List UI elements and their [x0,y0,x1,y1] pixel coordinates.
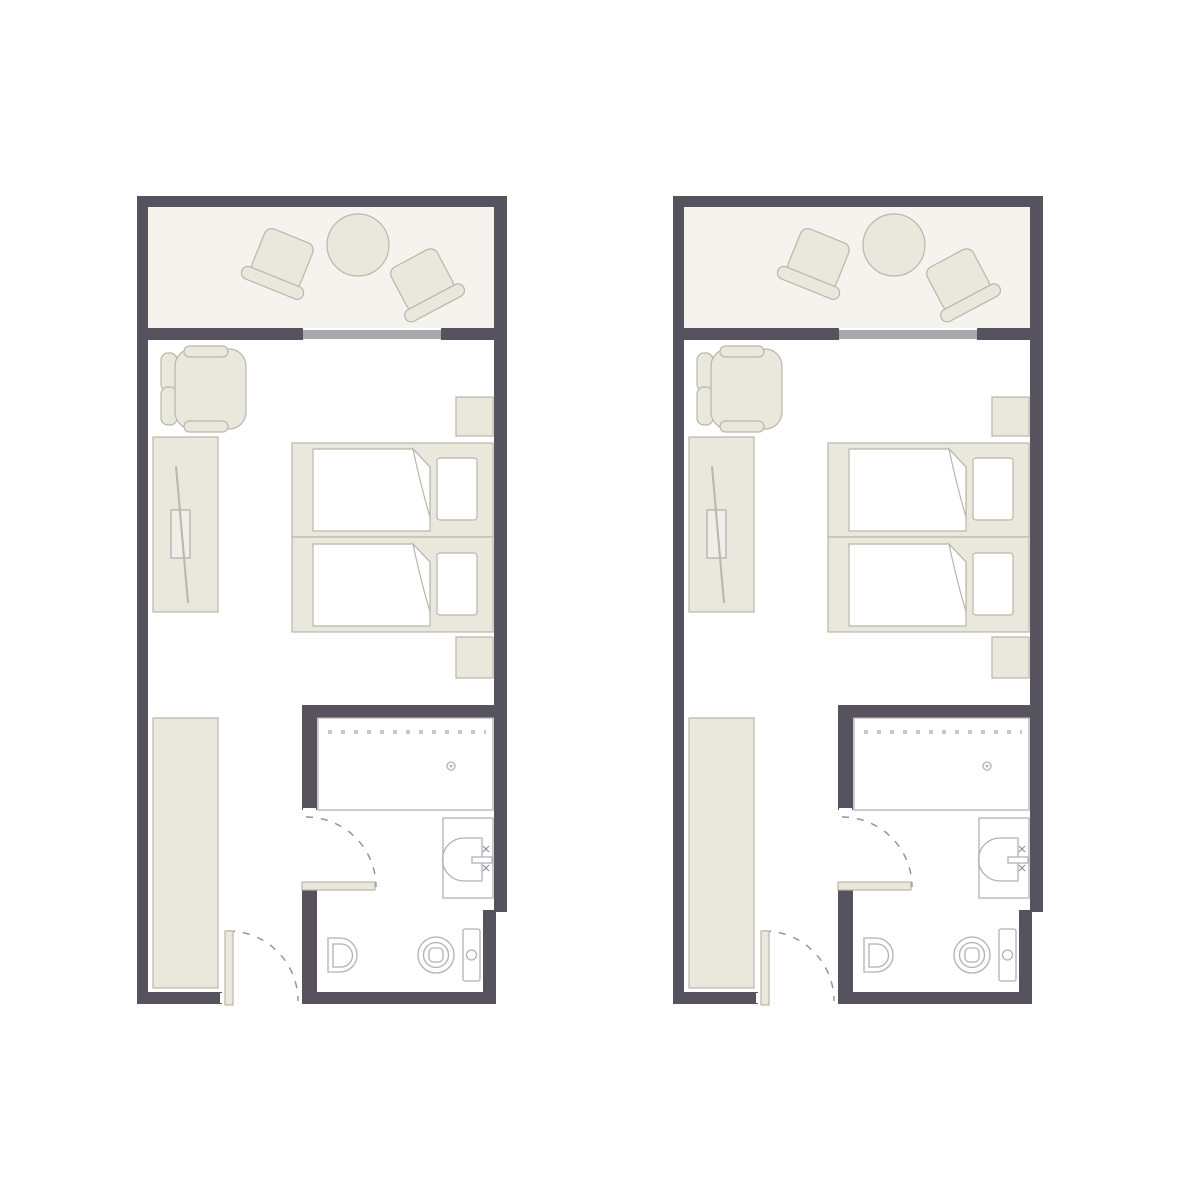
sink-vanity [979,818,1030,898]
floor-plan-svg [0,0,1200,1200]
pillow [973,553,1013,615]
wall-bathroom-top [838,705,1030,718]
wall-right-lower [483,910,496,1004]
bathroom-door-leaf [838,882,911,890]
desk-console [153,437,218,612]
bathroom-door-swing-arc [306,817,376,887]
wall-balcony-bottom-left [148,328,303,340]
desk-console [689,437,754,612]
twin-bed-2 [292,537,493,632]
floor-plan-canvas [0,0,1200,1200]
armchair-armrest-top [720,346,764,357]
entry-door-leaf [225,931,233,1005]
armchair [161,346,246,432]
toilet [954,929,1016,981]
wall-balcony-bottom-right [977,328,1030,340]
entry-door-swing-arc [764,931,834,1001]
wall-bottom-bathroom [838,992,1032,1004]
wall-bathroom-left-upper [302,718,317,810]
bed-sheet [313,449,430,531]
pillow [437,458,477,520]
wall-balcony-bottom-left [684,328,839,340]
bathroom [838,718,1029,981]
twin-bed-1 [828,443,1029,537]
twin-bed-1 [292,443,493,537]
bathroom-door-jamb [303,808,316,813]
balcony-round-table [863,214,925,276]
bed-sheet [849,544,966,626]
wall-bottom-left [673,992,758,1004]
nightstand-top [992,397,1029,436]
nightstand-bottom [456,637,493,678]
wall-top [673,196,1043,207]
bathroom [302,718,493,981]
room-unit-2 [673,196,1043,1005]
pillow [437,553,477,615]
bathroom-door-jamb [839,808,852,813]
armchair-seat [711,349,782,429]
sliding-glass-door [303,330,441,339]
wall-bottom-bathroom [302,992,496,1004]
wall-left [673,196,684,1004]
balcony-round-table [327,214,389,276]
pillow [973,458,1013,520]
bedroom [153,346,493,988]
bathroom-door [302,817,376,890]
balcony [684,207,1030,328]
armchair-armrest-bottom [720,421,764,432]
wall-right-lower [1019,910,1032,1004]
wardrobe [153,718,218,988]
armchair [697,346,782,432]
wall-bathroom-left-lower [838,890,853,992]
bathtub-drain-dot [450,765,453,768]
entry-door-leaf [761,931,769,1005]
faucet [472,857,492,863]
bathroom-door-swing-arc [842,817,912,887]
toilet-tank [463,929,480,981]
bidet [328,938,357,972]
entry-door [761,931,834,1005]
sliding-glass-door [839,330,977,339]
wall-bathroom-left-upper [838,718,853,810]
room-unit-1 [137,196,507,1005]
wall-right-upper [1030,196,1043,912]
wall-bathroom-left-lower [302,890,317,992]
wall-top [137,196,507,207]
wall-balcony-bottom-right [441,328,494,340]
bed-sheet [313,544,430,626]
entry-door [225,931,298,1005]
armchair-armrest-top [184,346,228,357]
armchair-seat [175,349,246,429]
wall-right-upper [494,196,507,912]
wall-bathroom-top [302,705,494,718]
twin-bed-2 [828,537,1029,632]
bathroom-door-leaf [302,882,375,890]
bidet [864,938,893,972]
armchair-armrest-bottom [184,421,228,432]
sink-vanity [443,818,493,898]
entry-door-swing-arc [228,931,298,1001]
toilet-seat-mark [965,948,979,962]
faucet [1008,857,1028,863]
bedroom [689,346,1029,988]
toilet-tank [999,929,1016,981]
balcony [148,207,494,328]
bed-sheet [849,449,966,531]
nightstand-top [456,397,493,436]
nightstand-bottom [992,637,1029,678]
bathtub [854,718,1029,810]
toilet [418,929,480,981]
wall-left [137,196,148,1004]
bathtub [318,718,493,810]
toilet-seat-mark [429,948,443,962]
wardrobe [689,718,754,988]
wall-bottom-left [137,992,222,1004]
bathtub-drain-dot [986,765,989,768]
bathroom-door [838,817,912,890]
